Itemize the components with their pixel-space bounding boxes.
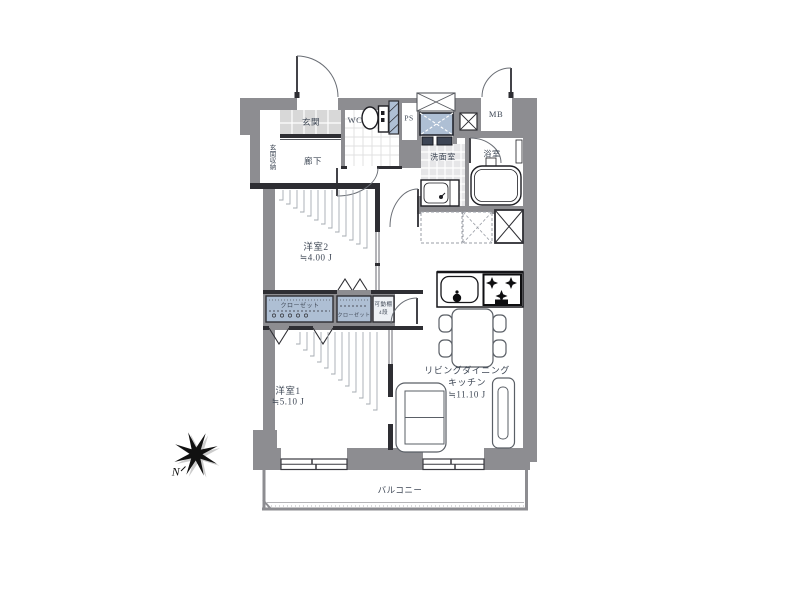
label-movable-shelf-2: 4段: [379, 308, 388, 316]
label-bathroom: 浴室: [484, 149, 501, 160]
kettle-icon: [453, 294, 461, 302]
label-movable-shelf-1: 可動棚: [374, 300, 392, 308]
label-mb: MB: [489, 109, 503, 119]
label-hallway: 廊下: [304, 155, 322, 167]
wc-door: [337, 168, 378, 196]
label-ldk-line2: キッチン: [448, 376, 486, 389]
meter-box-door: [482, 68, 514, 98]
label-bedroom2-size: ≒4.00 J: [300, 253, 333, 264]
stove-icon: [484, 275, 522, 306]
washing-machine-space: [420, 113, 453, 145]
compass-star: [174, 432, 217, 475]
label-closet-left: クローゼット: [280, 301, 319, 310]
label-bedroom1-name: 洋室1: [275, 383, 300, 397]
refrigerator-space: [421, 210, 523, 243]
kitchen-counter: [437, 272, 523, 307]
label-balcony: バルコニー: [378, 484, 423, 496]
entrance-door: [295, 56, 339, 98]
floorplan-canvas: 玄関 玄関収納 廊下 WC PS MB 洗面室 浴室 洋室2 ≒4.00 J 洋…: [0, 0, 804, 600]
wc-shelf-icon: [389, 101, 399, 134]
label-bedroom2-name: 洋室2: [303, 239, 328, 253]
closet-bifold-doors-up: [338, 279, 367, 290]
floorplan-drawing: [0, 0, 804, 600]
tv-board-icon: [493, 378, 515, 448]
label-compass-north: N: [172, 465, 181, 480]
vanity-sink-icon: [421, 180, 459, 206]
genkan-step-edge: [280, 134, 341, 138]
small-duct-icon: [460, 113, 477, 130]
label-ps: PS: [404, 114, 413, 123]
label-genkan-storage: 玄関収納: [266, 144, 276, 170]
label-wc: WC: [348, 115, 363, 125]
label-bedroom1-size: ≒5.10 J: [272, 397, 305, 408]
bedroom1-window: [281, 459, 347, 470]
compass-rose: [174, 432, 220, 477]
dining-table-icon: [439, 309, 506, 367]
label-closet-middle: クローゼット: [337, 312, 370, 319]
label-ldk-size: ≒11.10 J: [448, 390, 485, 401]
ldk-window: [423, 459, 484, 470]
label-genkan: 玄関: [302, 116, 320, 128]
label-washroom: 洗面室: [430, 152, 456, 163]
sofa-icon: [396, 383, 446, 452]
ldk-door: [390, 189, 418, 227]
closet-bifold-doors-down: [269, 328, 333, 344]
duct-box-icon: [417, 93, 455, 111]
